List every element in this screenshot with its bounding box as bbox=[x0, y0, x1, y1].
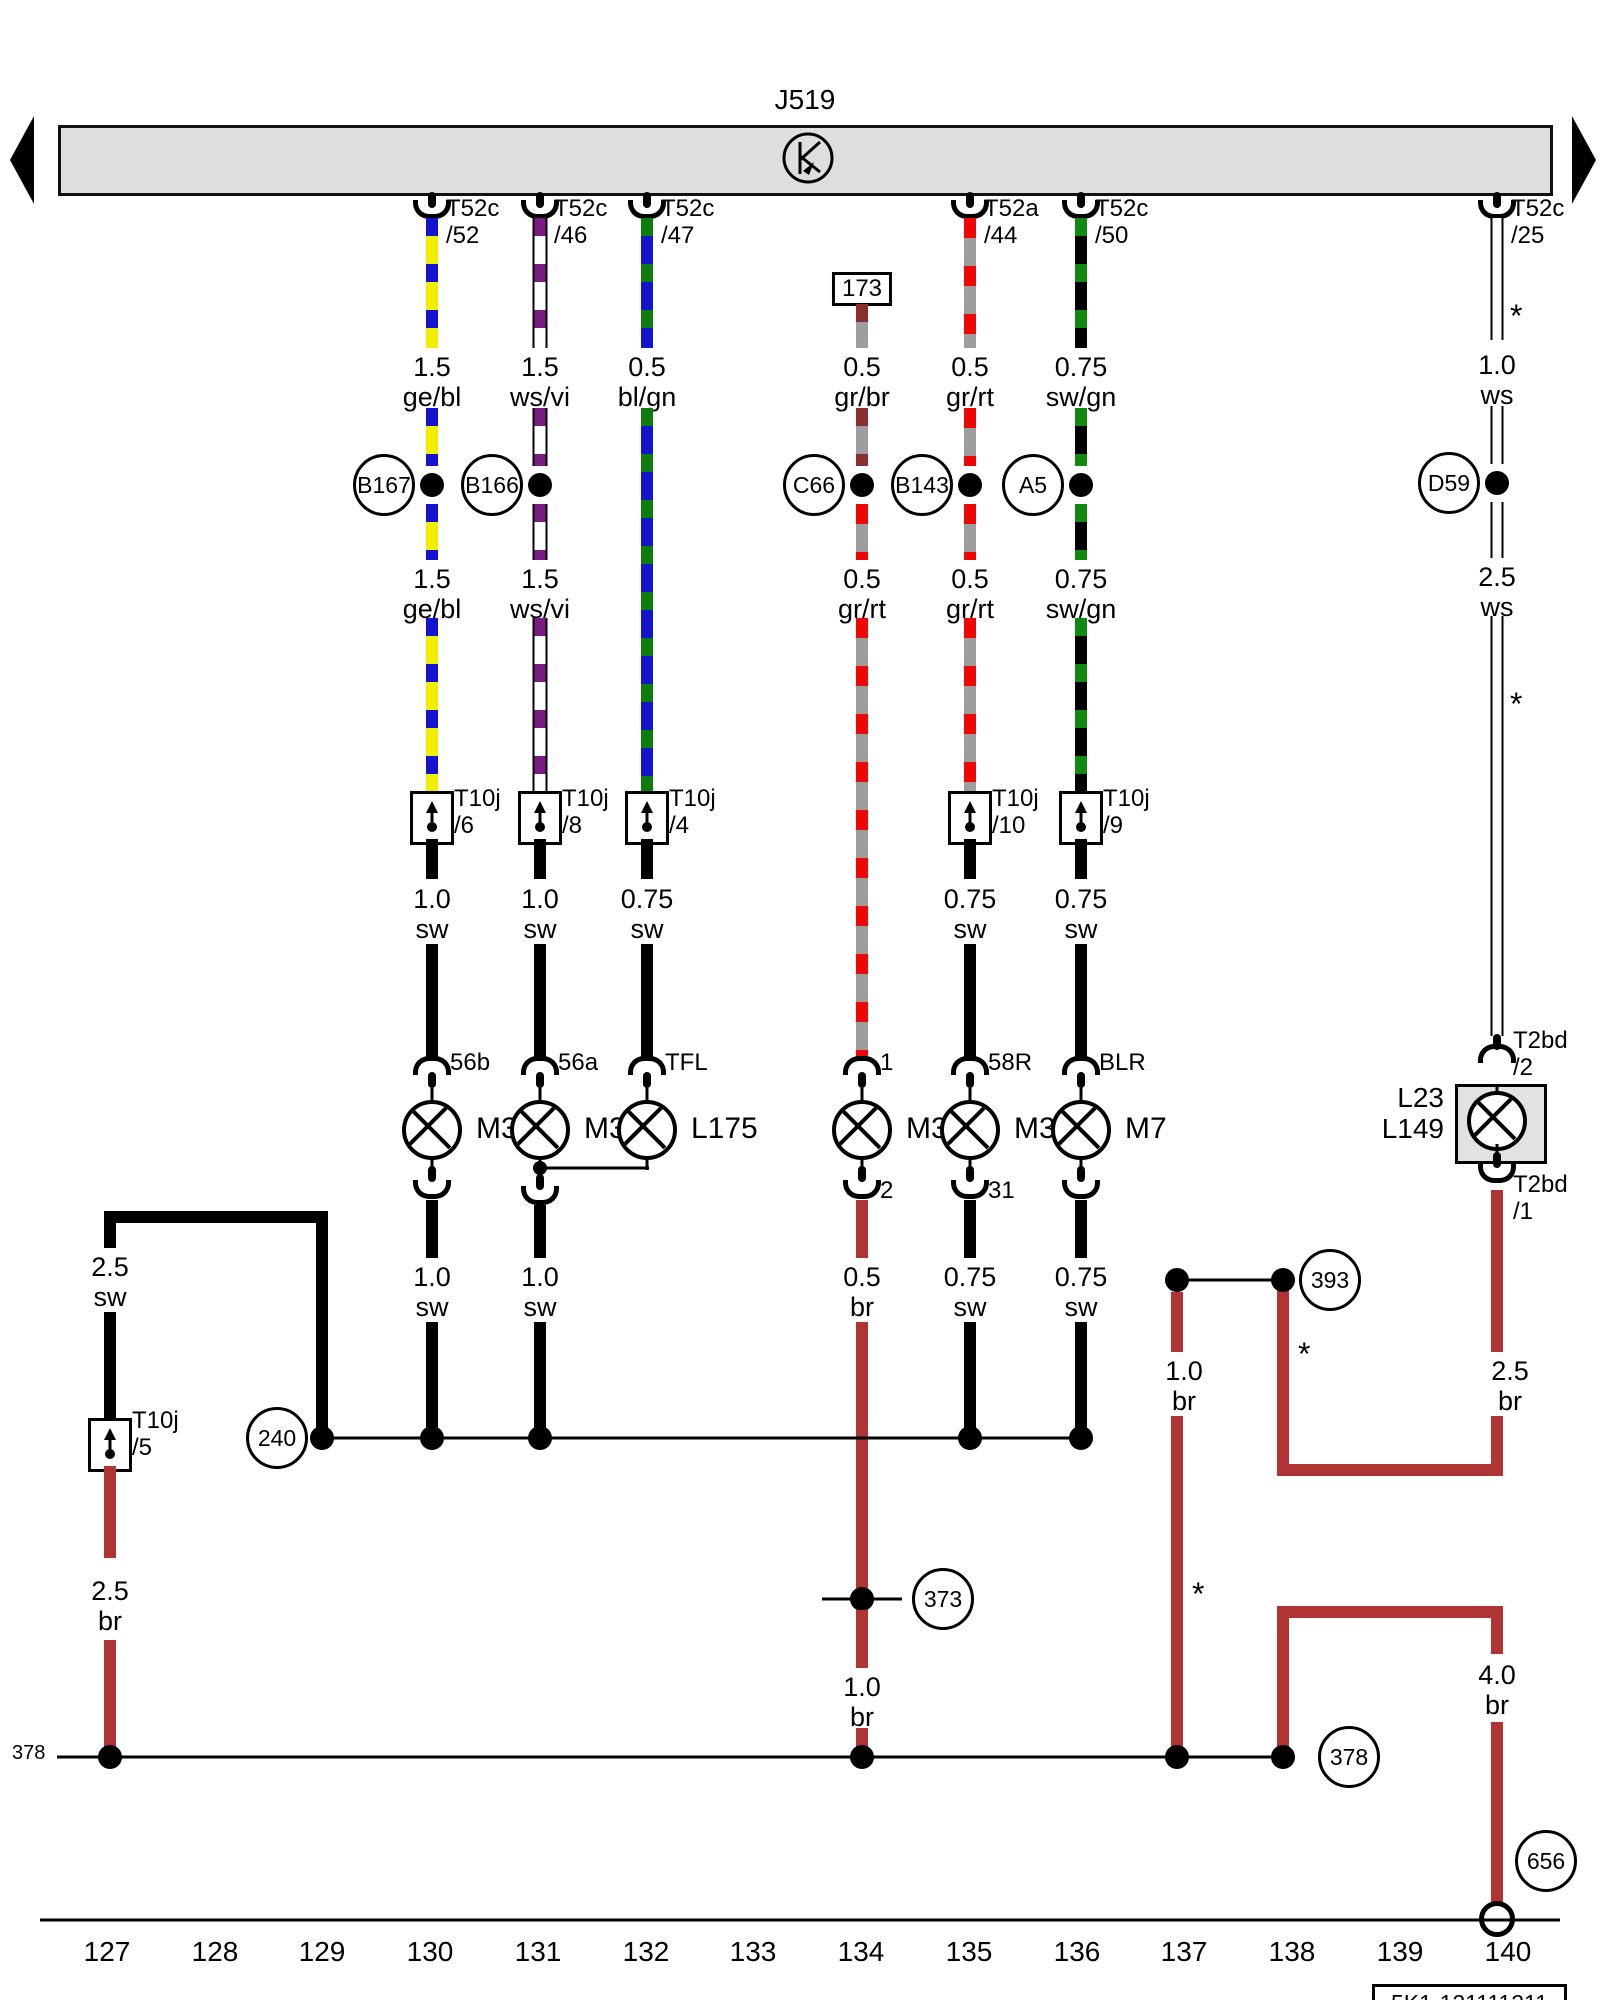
wire-sw bbox=[426, 1200, 438, 1258]
bus-terminal-label-c7: T52c /25 bbox=[1511, 196, 1564, 250]
terminal-cup bbox=[1062, 1180, 1100, 1199]
wire-ws bbox=[1491, 502, 1504, 558]
wire-sw bbox=[426, 839, 438, 879]
wire-wsvi bbox=[533, 218, 548, 348]
terminal-cup bbox=[1478, 1164, 1516, 1183]
wire-gebl bbox=[426, 408, 438, 466]
bulb-m7-icon bbox=[1051, 1100, 1111, 1160]
component-label-m3: M3 bbox=[1014, 1112, 1056, 1146]
component-lead bbox=[646, 1156, 649, 1170]
wire-sw bbox=[964, 944, 976, 1058]
wire-label: 0.75 sw/gn bbox=[1046, 564, 1117, 624]
junction-dot bbox=[528, 1426, 552, 1450]
wire-br bbox=[856, 1610, 868, 1668]
terminal-pin bbox=[1077, 1072, 1085, 1088]
track-number: 140 bbox=[1485, 1936, 1532, 1967]
wire-label: 1.5 ws/vi bbox=[510, 564, 570, 624]
wire-grrt bbox=[964, 218, 976, 348]
wire-br bbox=[1171, 1416, 1183, 1758]
wire-sw bbox=[534, 944, 546, 1058]
wire-label: 1.5 ws/vi bbox=[510, 352, 570, 412]
row-reference-378: 378 bbox=[12, 1742, 45, 1764]
wire-label: 0.75 sw bbox=[621, 884, 674, 944]
ground-line-378 bbox=[57, 1756, 1284, 1759]
bulb-m31-icon bbox=[402, 1100, 462, 1160]
ground-ref-378: 378 bbox=[1318, 1726, 1380, 1788]
wire-sw bbox=[534, 1205, 546, 1258]
wire-label: 1.0 sw bbox=[413, 1262, 451, 1322]
wire-sw bbox=[534, 839, 546, 879]
connector-arrow-icon bbox=[419, 799, 445, 837]
junction-dot bbox=[1069, 1426, 1093, 1450]
wire-label: 1.0 br bbox=[1165, 1356, 1203, 1416]
terminal-pin bbox=[643, 1072, 651, 1088]
terminal-label-31: 31 bbox=[988, 1178, 1015, 1205]
wire-label: 1.0 sw bbox=[521, 1262, 559, 1322]
terminal-label-2: 2 bbox=[880, 1178, 893, 1205]
ground-ref-393: 393 bbox=[1299, 1249, 1361, 1311]
wire-label: 0.75 sw bbox=[1055, 1262, 1108, 1322]
terminal-label-t2bd2: T2bd /2 bbox=[1513, 1028, 1568, 1082]
wire-sw bbox=[964, 1200, 976, 1258]
component-label-l175: L175 bbox=[691, 1112, 758, 1146]
wire-label: 2.5 ws bbox=[1478, 562, 1516, 622]
wire-label: 2.5 sw bbox=[91, 1252, 129, 1312]
junction-dot bbox=[420, 473, 444, 497]
track-number: 138 bbox=[1269, 1936, 1316, 1967]
terminal-cup bbox=[521, 1186, 559, 1205]
wire-label: 0.5 gr/br bbox=[834, 352, 890, 412]
wire-label: 2.5 br bbox=[91, 1576, 129, 1636]
track-number: 127 bbox=[84, 1936, 131, 1967]
wire-grbr bbox=[856, 408, 868, 466]
track-reference-box: 173 bbox=[832, 272, 892, 306]
track-number: 128 bbox=[192, 1936, 239, 1967]
wire-label: 0.5 bl/gn bbox=[618, 352, 677, 412]
inline-connector-label-c5: T10j /10 bbox=[992, 786, 1039, 840]
wire-gebl bbox=[426, 618, 438, 792]
junction-dot bbox=[420, 1426, 444, 1450]
wire-br bbox=[856, 1200, 868, 1258]
wire-gebl bbox=[426, 504, 438, 560]
track-number: 136 bbox=[1054, 1936, 1101, 1967]
track-number: 134 bbox=[838, 1936, 885, 1967]
wire-br bbox=[1277, 1286, 1289, 1476]
wire-label: 0.75 sw bbox=[944, 884, 997, 944]
wire-label: 0.75 sw/gn bbox=[1046, 352, 1117, 412]
wire-sw bbox=[104, 1312, 116, 1420]
terminal-label-tfl: TFL bbox=[665, 1050, 708, 1077]
wire-swgn bbox=[1075, 504, 1087, 560]
ground-ref-656: 656 bbox=[1515, 1830, 1577, 1892]
inline-connector-label-c1: T10j /6 bbox=[454, 786, 501, 840]
wire-label: 1.5 ge/bl bbox=[403, 564, 462, 624]
wire-wsvi bbox=[533, 408, 548, 466]
component-label-l23-l149: L23 L149 bbox=[1358, 1082, 1444, 1145]
junction-dot bbox=[1271, 1745, 1295, 1769]
bulb-l23-icon bbox=[1467, 1091, 1527, 1151]
jumper-wire bbox=[540, 1167, 649, 1170]
track-number: 133 bbox=[730, 1936, 777, 1967]
splice-c66: C66 bbox=[783, 454, 845, 516]
wire-grrt bbox=[964, 504, 976, 560]
wire-sw bbox=[1075, 839, 1087, 879]
junction-dot bbox=[1485, 471, 1509, 495]
wire-label: 0.5 gr/rt bbox=[946, 352, 994, 412]
wire-wsvi bbox=[533, 504, 548, 560]
junction-dot bbox=[528, 473, 552, 497]
junction-dot bbox=[958, 473, 982, 497]
junction-dot bbox=[1165, 1268, 1189, 1292]
bulb-l175-icon bbox=[617, 1100, 677, 1160]
bulb-m3-icon bbox=[940, 1100, 1000, 1160]
wire-label: 0.5 br bbox=[843, 1262, 881, 1322]
wire-sw bbox=[534, 1322, 546, 1439]
wire-swgn bbox=[1075, 618, 1087, 792]
terminal-pin bbox=[966, 1072, 974, 1088]
wire-swgn bbox=[1075, 408, 1087, 466]
bus-terminal-label-c5: T52a /44 bbox=[984, 196, 1039, 250]
junction-dot bbox=[98, 1745, 122, 1769]
wire-sw bbox=[964, 1322, 976, 1439]
track-number: 135 bbox=[946, 1936, 993, 1967]
terminal-cup bbox=[843, 1180, 881, 1199]
inline-connector-box bbox=[1059, 791, 1103, 845]
splice-link bbox=[1177, 1279, 1283, 1282]
wire-blgn bbox=[641, 408, 653, 792]
terminal-cup bbox=[951, 1180, 989, 1199]
wire-ws bbox=[1491, 616, 1504, 1036]
bulb-m34-icon bbox=[832, 1100, 892, 1160]
track-number: 131 bbox=[515, 1936, 562, 1967]
track-number: 129 bbox=[299, 1936, 346, 1967]
wire-sw-horizontal bbox=[104, 1211, 328, 1223]
footnote-asterisk: * bbox=[1510, 688, 1522, 720]
wire-br bbox=[856, 1322, 868, 1588]
splice-d59: D59 bbox=[1418, 452, 1480, 514]
wire-label: 1.0 ws bbox=[1478, 350, 1516, 410]
wire-label: 0.75 sw bbox=[1055, 884, 1108, 944]
wire-label: 1.0 sw bbox=[521, 884, 559, 944]
terminal-label-t2bd1: T2bd /1 bbox=[1513, 1172, 1568, 1226]
junction-dot bbox=[850, 473, 874, 497]
inline-connector-label-c3: T10j /4 bbox=[669, 786, 716, 840]
track-number: 130 bbox=[407, 1936, 454, 1967]
wire-br bbox=[1171, 1292, 1183, 1352]
terminal-label-58r: 58R bbox=[988, 1050, 1032, 1077]
terminal-pin bbox=[858, 1072, 866, 1088]
footnote-asterisk: * bbox=[1298, 1338, 1310, 1370]
inline-connector-box bbox=[625, 791, 669, 845]
junction-dot bbox=[1069, 473, 1093, 497]
wire-grrt bbox=[964, 618, 976, 792]
wire-sw bbox=[641, 839, 653, 879]
diagram-part-code: 5K1-121111211 bbox=[1372, 1984, 1567, 2000]
wire-br-horizontal bbox=[1277, 1464, 1503, 1476]
wire-grrt bbox=[856, 618, 868, 1058]
wire-label: 0.75 sw bbox=[944, 1262, 997, 1322]
junction-dot bbox=[850, 1587, 874, 1611]
wire-sw bbox=[964, 839, 976, 879]
inline-connector-box bbox=[518, 791, 562, 845]
splice-b166: B166 bbox=[461, 454, 523, 516]
connector-arrow-icon bbox=[527, 799, 553, 837]
splice-b143: B143 bbox=[891, 454, 953, 516]
splice-b167: B167 bbox=[353, 454, 415, 516]
wire-swgn bbox=[1075, 218, 1087, 348]
wire-label: 2.5 br bbox=[1491, 1356, 1529, 1416]
wire-br-horizontal bbox=[1277, 1606, 1503, 1618]
wire-wsvi bbox=[533, 618, 548, 792]
wire-grrt bbox=[856, 504, 868, 560]
inline-connector-label-c2: T10j /8 bbox=[562, 786, 609, 840]
wire-sw bbox=[316, 1211, 328, 1438]
inline-connector-box bbox=[88, 1418, 132, 1472]
wire-label: 1.5 ge/bl bbox=[403, 352, 462, 412]
wire-br bbox=[1277, 1606, 1289, 1758]
wire-label: 0.5 gr/rt bbox=[946, 564, 994, 624]
inline-connector-box bbox=[948, 791, 992, 845]
component-label-m7: M7 bbox=[1125, 1112, 1167, 1146]
continuation-arrow-right-icon bbox=[1572, 116, 1596, 204]
bus-terminal-label-c2: T52c /46 bbox=[554, 196, 607, 250]
wire-blgn bbox=[641, 218, 653, 348]
junction-dot bbox=[1271, 1268, 1295, 1292]
splice-a5: A5 bbox=[1002, 454, 1064, 516]
bus-terminal-label-c1: T52c /52 bbox=[446, 196, 499, 250]
inline-connector-label-left: T10j /5 bbox=[132, 1408, 179, 1462]
bus-terminal-label-c3: T52c /47 bbox=[661, 196, 714, 250]
track-number: 139 bbox=[1377, 1936, 1424, 1967]
bus-component-label: J519 bbox=[775, 84, 836, 115]
terminal-label-56b: 56b bbox=[450, 1050, 490, 1077]
wire-ws bbox=[1491, 218, 1504, 340]
junction-dot bbox=[310, 1426, 334, 1450]
wire-gebl bbox=[426, 218, 438, 348]
wire-sw bbox=[1075, 1322, 1087, 1439]
wire-label: 1.0 sw bbox=[413, 884, 451, 944]
terminal-label-56a: 56a bbox=[558, 1050, 598, 1077]
wire-br bbox=[1491, 1612, 1503, 1654]
wire-sw bbox=[1075, 1200, 1087, 1258]
track-scale-line bbox=[40, 1919, 1560, 1922]
ground-ref-373: 373 bbox=[912, 1568, 974, 1630]
connector-arrow-icon bbox=[957, 799, 983, 837]
wire-sw bbox=[426, 1322, 438, 1439]
wire-br bbox=[104, 1466, 116, 1558]
track-number: 132 bbox=[623, 1936, 670, 1967]
wire-label: 1.0 br bbox=[843, 1672, 881, 1732]
wire-br bbox=[1491, 1190, 1503, 1352]
wire-grrt bbox=[964, 408, 976, 466]
inline-connector-box bbox=[410, 791, 454, 845]
bulb-m32-icon bbox=[510, 1100, 570, 1160]
connector-arrow-icon bbox=[97, 1426, 123, 1464]
terminal-cup bbox=[1478, 1044, 1516, 1063]
wire-sw bbox=[104, 1217, 116, 1248]
wiring-diagram-canvas: J519 T52c /52 T52c /46 T52c /47 T52a /44… bbox=[0, 0, 1600, 2000]
connector-arrow-icon bbox=[1068, 799, 1094, 837]
terminal-cup bbox=[413, 1180, 451, 1199]
junction-dot bbox=[850, 1745, 874, 1769]
terminal-label-blr: BLR bbox=[1099, 1050, 1146, 1077]
wire-sw bbox=[426, 944, 438, 1058]
junction-dot bbox=[958, 1426, 982, 1450]
connector-arrow-icon bbox=[634, 799, 660, 837]
wire-label: 0.5 gr/rt bbox=[838, 564, 886, 624]
wire-label: 4.0 br bbox=[1478, 1660, 1516, 1720]
terminal-pin bbox=[536, 1072, 544, 1088]
bus-terminal-label-c6: T52c /50 bbox=[1095, 196, 1148, 250]
continuation-arrow-left-icon bbox=[10, 116, 34, 204]
wire-grbr bbox=[856, 304, 868, 348]
wire-br bbox=[1491, 1722, 1503, 1908]
track-number: 137 bbox=[1161, 1936, 1208, 1967]
terminal-pin bbox=[428, 1072, 436, 1088]
wire-br bbox=[104, 1640, 116, 1758]
junction-dot bbox=[1165, 1745, 1189, 1769]
inline-connector-label-c6: T10j /9 bbox=[1103, 786, 1150, 840]
ground-ref-240: 240 bbox=[246, 1407, 308, 1469]
footnote-asterisk: * bbox=[1192, 1578, 1204, 1610]
terminal-label-1: 1 bbox=[880, 1050, 893, 1077]
bus-symbol-icon bbox=[781, 131, 835, 185]
wire-sw bbox=[1075, 944, 1087, 1058]
footnote-asterisk: * bbox=[1510, 300, 1522, 332]
wire-ws bbox=[1491, 406, 1504, 464]
wire-sw bbox=[641, 944, 653, 1058]
